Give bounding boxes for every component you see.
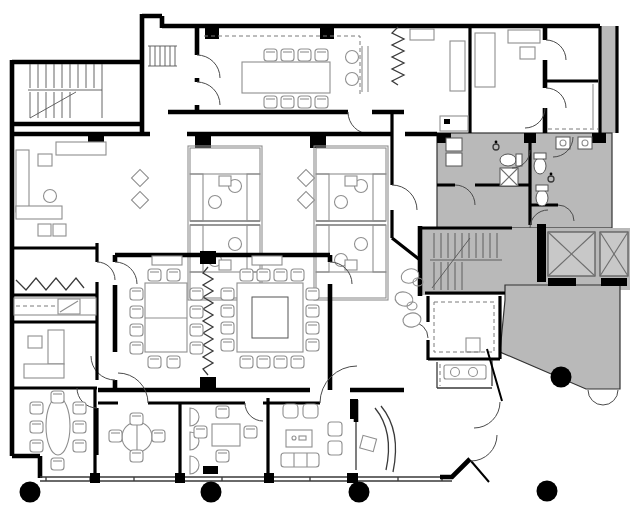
exit-stair-treads xyxy=(148,46,177,66)
boardroom-right xyxy=(221,256,319,368)
angled-wall xyxy=(440,459,470,477)
lobby-door-swing xyxy=(588,390,618,405)
toilet xyxy=(534,153,546,174)
round-column xyxy=(537,481,558,502)
guest-diamond-chairs xyxy=(132,170,315,209)
sink xyxy=(446,138,462,151)
dashed-ceiling-line xyxy=(434,302,494,352)
boardroom-left xyxy=(130,256,203,368)
toilet xyxy=(500,154,522,166)
round-table-room xyxy=(109,413,165,462)
sill-block xyxy=(203,466,218,474)
column-block xyxy=(205,26,219,39)
folding-partition xyxy=(392,27,404,85)
closet-hanger-zigzag xyxy=(16,278,84,290)
huddle-room xyxy=(190,406,257,474)
floor-plan-drawing xyxy=(0,0,633,510)
small-office xyxy=(24,330,64,378)
door-swing-arc xyxy=(91,262,352,380)
copy-room xyxy=(14,298,96,315)
round-column xyxy=(20,482,41,503)
round-column xyxy=(349,482,370,503)
floor-plan-page xyxy=(0,0,633,510)
lobby-bench-area xyxy=(437,360,492,388)
door-swing-arc xyxy=(118,366,357,421)
round-column xyxy=(201,482,222,503)
sink xyxy=(446,153,462,166)
urinal xyxy=(556,137,570,149)
northeast-rooms xyxy=(410,26,598,133)
door-swing-arc xyxy=(392,185,417,210)
manager-l-desk xyxy=(16,142,106,236)
south-rooms xyxy=(98,366,395,477)
folding-partition xyxy=(203,267,213,375)
lounge-room xyxy=(281,404,342,467)
double-door-swing xyxy=(471,402,500,461)
round-column xyxy=(551,367,572,388)
soft-seating-blobs xyxy=(393,266,423,328)
conference-table xyxy=(242,62,330,93)
stair-treads xyxy=(28,64,102,118)
reception-desk xyxy=(350,399,395,472)
counter xyxy=(362,46,368,92)
urinal xyxy=(578,137,592,149)
east-wall-gray-strip xyxy=(600,26,617,133)
toilet xyxy=(536,185,548,206)
north-conference-room xyxy=(168,26,404,134)
column-block xyxy=(320,26,334,39)
south-window-wall xyxy=(40,459,470,483)
stair-block-walls xyxy=(12,14,162,136)
west-rooms xyxy=(12,243,115,477)
